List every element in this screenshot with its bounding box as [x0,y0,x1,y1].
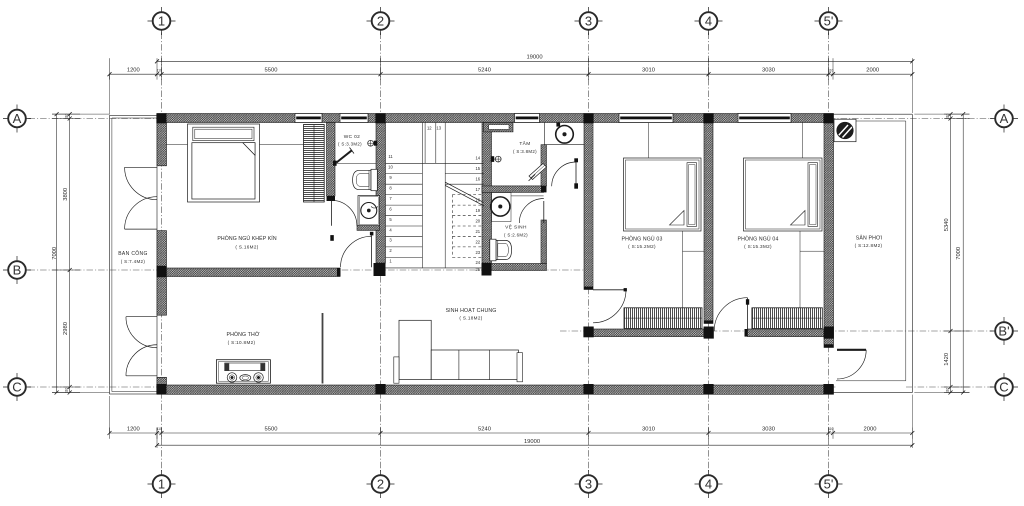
svg-text:110: 110 [945,114,949,119]
svg-text:2980: 2980 [63,322,69,335]
svg-text:( S:7.4M2): ( S:7.4M2) [121,259,146,264]
svg-text:2: 2 [377,14,384,29]
svg-text:( S:2.6M2): ( S:2.6M2) [504,233,528,238]
svg-text:18: 18 [475,198,480,203]
svg-text:11: 11 [388,154,393,159]
svg-text:20: 20 [475,218,480,223]
svg-text:110: 110 [157,68,162,72]
svg-text:PHÒNG THỜ: PHÒNG THỜ [226,331,259,338]
svg-text:B: B [13,263,22,278]
svg-text:110: 110 [64,388,68,393]
svg-text:14: 14 [475,156,480,161]
svg-text:2: 2 [377,477,384,492]
svg-text:110: 110 [945,388,949,393]
svg-text:1: 1 [158,14,165,29]
svg-text:( S.18M2): ( S.18M2) [459,316,482,321]
svg-text:3: 3 [585,14,592,29]
svg-text:PHÒNG NGỦ KHÉP KÍN: PHÒNG NGỦ KHÉP KÍN [217,235,277,242]
svg-text:5500: 5500 [265,426,278,432]
svg-text:19000: 19000 [524,439,540,445]
svg-text:1: 1 [158,477,165,492]
svg-text:( S:15.3M2): ( S:15.3M2) [744,244,772,249]
svg-text:SÂN PHƠI: SÂN PHƠI [856,234,882,241]
svg-text:5': 5' [824,14,834,29]
svg-text:1200: 1200 [127,426,140,432]
svg-text:( S:10.8M2): ( S:10.8M2) [228,340,256,345]
svg-text:5240: 5240 [478,426,491,432]
svg-text:3030: 3030 [762,68,775,74]
svg-text:( S:3.3M2): ( S:3.3M2) [338,142,362,147]
svg-text:3: 3 [585,477,592,492]
svg-text:7000: 7000 [52,247,58,260]
svg-text:WC 02: WC 02 [344,134,360,140]
svg-text:2000: 2000 [866,68,879,74]
svg-text:5240: 5240 [478,68,491,74]
svg-text:22: 22 [475,239,480,244]
svg-text:110: 110 [64,114,68,119]
svg-text:110: 110 [828,68,833,72]
svg-text:16: 16 [475,177,480,182]
svg-text:( S:12.8M2): ( S:12.8M2) [855,243,883,248]
svg-text:1420: 1420 [944,353,950,366]
svg-text:1200: 1200 [127,68,140,74]
svg-text:SINH HOẠT CHUNG: SINH HOẠT CHUNG [446,308,497,314]
svg-text:5500: 5500 [265,68,278,74]
svg-text:25: 25 [475,267,480,272]
svg-text:BAN CÔNG: BAN CÔNG [118,250,147,257]
svg-text:13: 13 [436,125,441,130]
svg-text:10: 10 [388,165,393,170]
svg-text:PHÒNG NGỦ 03: PHÒNG NGỦ 03 [621,236,662,243]
svg-text:( S:3.8M2): ( S:3.8M2) [513,149,537,154]
svg-text:PHÒNG NGỦ 04: PHÒNG NGỦ 04 [737,236,778,243]
svg-text:110: 110 [828,427,833,431]
svg-text:17: 17 [475,187,480,192]
svg-text:4: 4 [705,14,712,29]
svg-text:( S:15.2M2): ( S:15.2M2) [628,244,656,249]
svg-text:24: 24 [475,260,480,265]
svg-text:C: C [999,380,1008,395]
svg-text:3010: 3010 [642,426,655,432]
svg-text:2000: 2000 [864,426,877,432]
svg-text:12: 12 [427,125,432,130]
svg-text:23: 23 [475,250,480,255]
svg-text:19: 19 [475,208,480,213]
svg-text:19000: 19000 [526,55,542,61]
svg-text:3030: 3030 [762,426,775,432]
svg-text:110: 110 [157,427,162,431]
svg-text:5': 5' [824,477,834,492]
svg-text:3010: 3010 [642,68,655,74]
svg-text:7000: 7000 [956,247,962,260]
svg-text:( S.16M2): ( S.16M2) [235,245,258,250]
svg-text:B': B' [998,324,1009,339]
svg-text:C: C [12,380,21,395]
svg-text:5340: 5340 [944,218,950,231]
svg-text:A: A [1000,111,1009,126]
svg-text:3800: 3800 [63,188,69,201]
svg-text:15: 15 [475,166,480,171]
svg-text:21: 21 [475,229,480,234]
svg-text:A: A [13,111,22,126]
svg-text:4: 4 [705,477,712,492]
